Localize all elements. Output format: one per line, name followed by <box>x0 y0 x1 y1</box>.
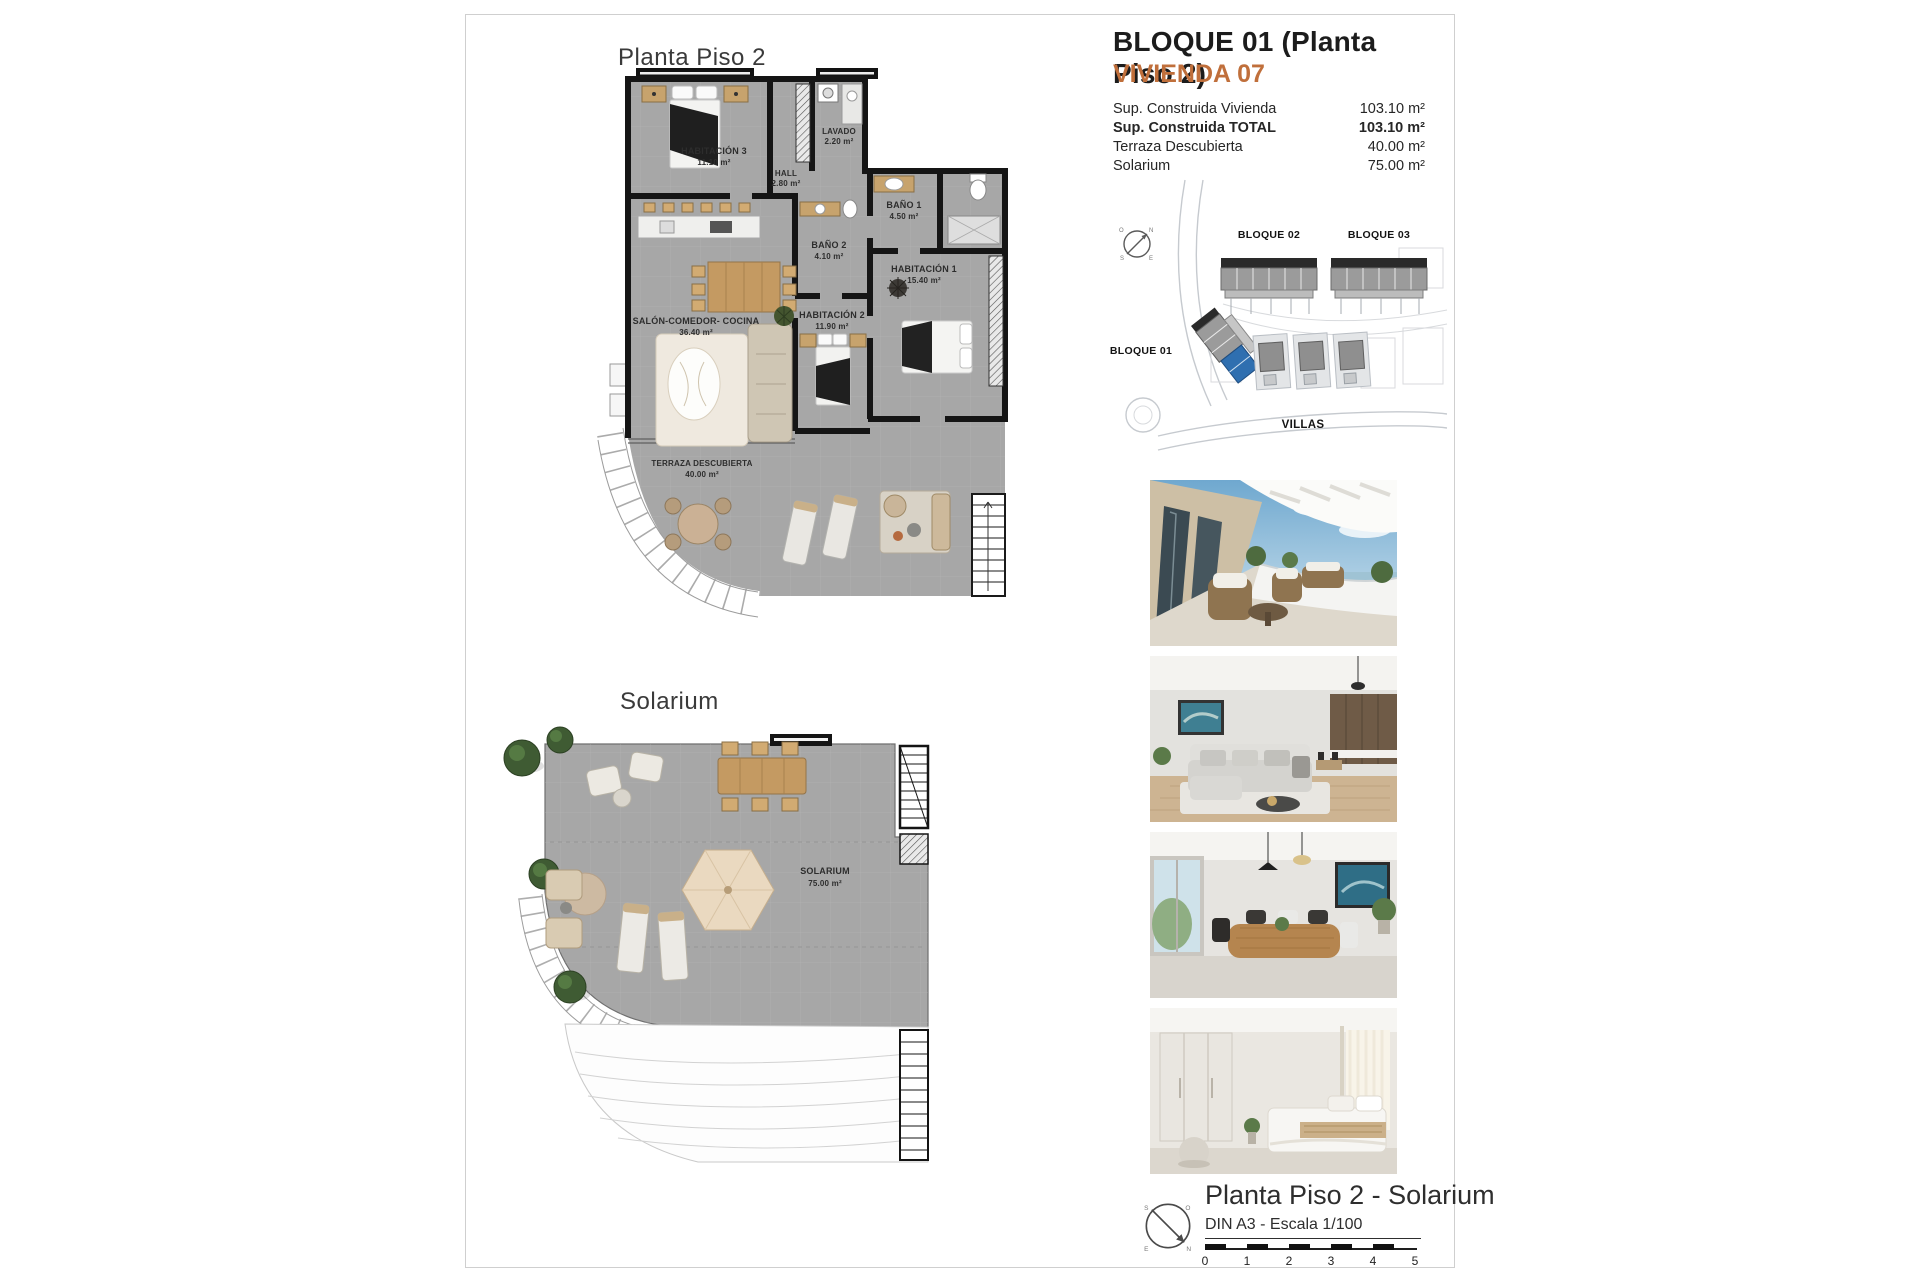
floor-plan-solarium: SOLARIUM 75.00 m² <box>470 722 1018 1187</box>
room-area-hall: 2.80 m² <box>772 179 801 188</box>
plan2-title: Solarium <box>620 688 719 716</box>
compass-point-e: E <box>1144 1246 1149 1252</box>
row-value: 40.00 m² <box>1368 138 1425 157</box>
outdoor-lounge-icon <box>880 491 950 553</box>
site-plan: NS OE BLOQUE 02 BLOQUE 03 <box>1103 178 1448 453</box>
room-area-terraza: 40.00 m² <box>685 470 719 479</box>
dining-table-icon <box>718 742 806 811</box>
stairs-icon <box>900 746 928 828</box>
wardrobe-icon <box>796 84 810 162</box>
room-area-hab1: 15.40 m² <box>907 276 941 285</box>
compass-icon: NS OE <box>1119 228 1153 262</box>
wardrobe-icon <box>1160 1033 1232 1141</box>
ac-unit-icon <box>610 394 626 416</box>
stairs-icon <box>900 1030 928 1160</box>
surface-table: Sup. Construida Vivienda 103.10 m² Sup. … <box>1113 100 1425 176</box>
photo-dining-area <box>1150 832 1397 998</box>
site-label-bloque03: BLOQUE 03 <box>1348 229 1410 241</box>
table-row: Sup. Construida TOTAL 103.10 m² <box>1113 119 1425 138</box>
scale-tick: 0 <box>1202 1254 1209 1268</box>
room-label-bano2: BAÑO 2 <box>811 240 846 250</box>
room-label-bano1: BAÑO 1 <box>886 200 921 210</box>
site-bloque03 <box>1331 258 1427 314</box>
scale-tick: 2 <box>1286 1254 1293 1268</box>
row-label: Terraza Descubierta <box>1113 138 1243 157</box>
room-label-hab2: HABITACIÓN 2 <box>799 309 865 320</box>
toilet-icon <box>970 180 986 200</box>
compass-icon: O S N E <box>1142 1200 1194 1252</box>
room-area-solarium: 75.00 m² <box>808 879 842 888</box>
wardrobe-icon <box>989 256 1003 386</box>
svg-text:N: N <box>1149 228 1153 234</box>
room-label-lavado: LAVADO <box>822 127 856 136</box>
compass-point-n: N <box>1186 1246 1191 1252</box>
table-row: Terraza Descubierta 40.00 m² <box>1113 138 1425 157</box>
svg-text:E: E <box>1149 256 1153 262</box>
photo-terrace-view <box>1150 480 1397 646</box>
scale-tick: 5 <box>1412 1254 1419 1268</box>
row-label: Sup. Construida Vivienda <box>1113 100 1276 119</box>
photo-living-room <box>1150 656 1397 822</box>
scale-tick: 3 <box>1328 1254 1335 1268</box>
room-label-hab3: HABITACIÓN 3 <box>681 145 747 156</box>
room-area-hab2: 11.90 m² <box>815 322 848 331</box>
room-area-bano2: 4.10 m² <box>815 252 844 261</box>
site-label-bloque02: BLOQUE 02 <box>1238 229 1300 241</box>
room-area-hab3: 11.10 m² <box>697 158 730 167</box>
stairs-icon <box>972 494 1005 596</box>
room-area-bano1: 4.50 m² <box>890 212 919 221</box>
svg-text:S: S <box>1120 256 1124 262</box>
row-value: 103.10 m² <box>1359 119 1425 138</box>
row-value: 75.00 m² <box>1368 157 1425 176</box>
bed-double-icon <box>902 321 972 373</box>
room-label-hab1: HABITACIÓN 1 <box>891 263 957 274</box>
ac-unit-icon <box>610 364 626 386</box>
compass-point-o: O <box>1185 1205 1190 1212</box>
scale-tick: 1 <box>1244 1254 1251 1268</box>
room-area-lavado: 2.20 m² <box>825 137 854 146</box>
row-label: Solarium <box>1113 157 1170 176</box>
site-bloque02 <box>1221 258 1317 314</box>
room-label-solarium: SOLARIUM <box>800 866 850 876</box>
footer-title: Planta Piso 2 - Solarium <box>1205 1180 1495 1211</box>
site-label-villas: VILLAS <box>1282 419 1325 431</box>
scale-bar: 0 1 2 3 4 5 <box>1205 1243 1417 1269</box>
site-label-bloque01: BLOQUE 01 <box>1110 345 1172 357</box>
dining-table-icon <box>692 262 796 312</box>
room-label-hall: HALL <box>775 169 797 178</box>
row-label: Sup. Construida TOTAL <box>1113 119 1276 138</box>
room-area-salon: 36.40 m² <box>679 328 713 337</box>
compass-point-s: S <box>1144 1205 1149 1212</box>
row-value: 103.10 m² <box>1360 100 1425 119</box>
room-label-terraza: TERRAZA DESCUBIERTA <box>651 459 752 468</box>
site-villas <box>1253 328 1371 394</box>
scale-label: DIN A3 - Escala 1/100 <box>1205 1216 1421 1239</box>
sofa-icon <box>1188 744 1312 800</box>
toilet-icon <box>843 200 857 218</box>
svg-text:O: O <box>1119 228 1124 234</box>
table-row: Sup. Construida Vivienda 103.10 m² <box>1113 100 1425 119</box>
room-label-salon: SALÓN-COMEDOR- COCINA <box>633 315 760 326</box>
unit-title: VIVIENDA 07 <box>1113 60 1443 89</box>
scale-tick: 4 <box>1370 1254 1377 1268</box>
floor-plan-piso2: HABITACIÓN 3 11.10 m² HALL 2.80 m² LAVAD… <box>580 66 1025 646</box>
photo-bedroom <box>1150 1008 1397 1174</box>
table-row: Solarium 75.00 m² <box>1113 157 1425 176</box>
brochure-page: Planta Piso 2 Solarium <box>0 0 1920 1280</box>
